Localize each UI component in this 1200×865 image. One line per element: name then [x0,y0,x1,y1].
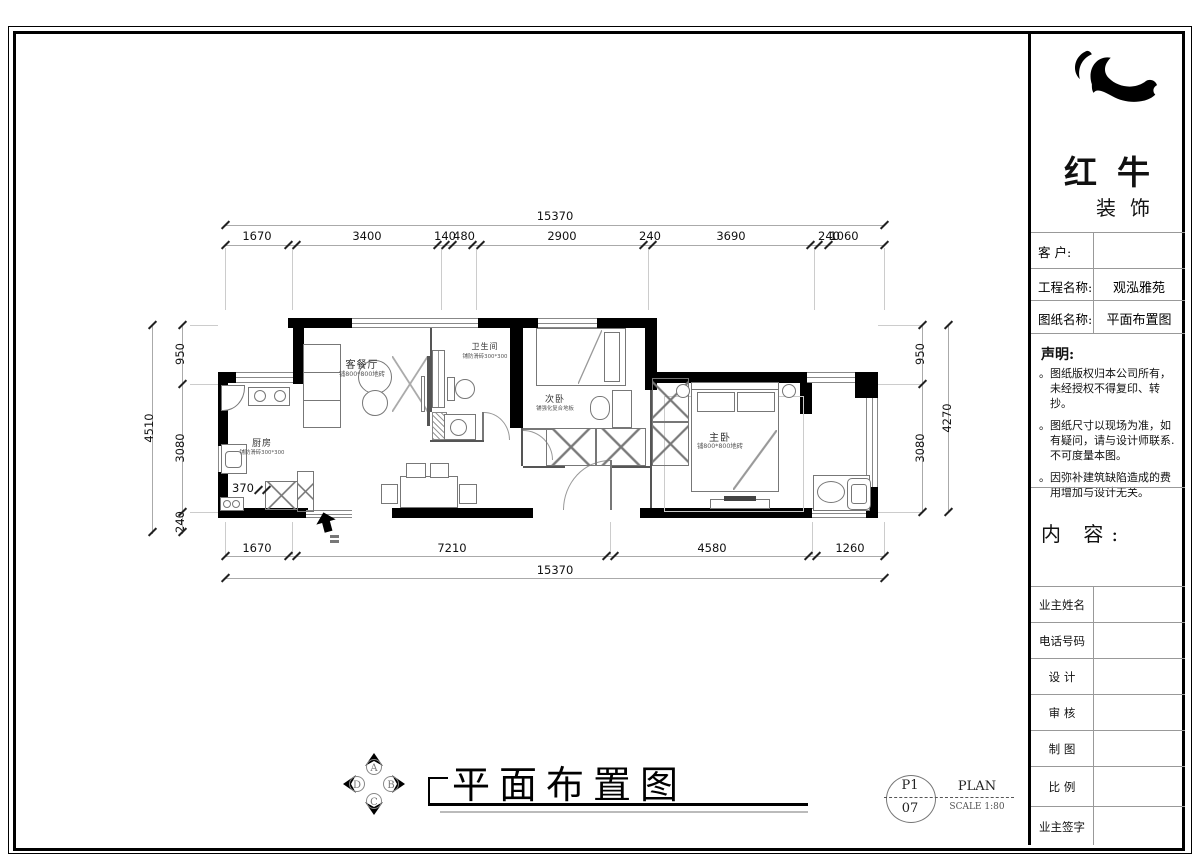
scale-label: SCALE 1:80 [938,802,1016,812]
window [538,318,597,328]
blanket-fold [578,330,602,384]
tb-divider [1031,658,1185,659]
row-label-signature: 业主签字 [1031,819,1093,835]
tb-divider [1031,487,1185,488]
laundry-basin [817,481,845,503]
field-label-project: 工程名称: [1038,277,1092,296]
window [807,372,855,383]
room-note-bath: 铺防滑砖300*300 [455,351,514,359]
exterior-wall [855,372,878,398]
compass-letter-b: B [387,780,394,791]
row-label-review: 审 核 [1031,705,1093,721]
row-label-draft: 制 图 [1031,741,1093,757]
dim-bottom-seg: 1670 [225,541,289,555]
dim-right-total: 4270 [940,395,954,441]
row-label-design: 设 计 [1031,669,1093,685]
company-name: 红牛 [1037,146,1177,194]
ceiling-light-icon [676,384,690,398]
extension-line [610,522,611,555]
extension-line [225,248,226,310]
window [352,318,478,328]
content-label: 内 容: [1041,518,1126,547]
dim-line-top-chain [225,245,885,246]
tv-master [724,496,756,501]
north-compass-icon: A B C D [342,752,406,816]
interior-thick-wall [510,318,523,428]
statement-item: 因弥补建筑缺陷造成的费用增加与设计无关。 [1039,470,1181,500]
desk [612,390,632,428]
wardrobe [546,428,596,466]
dim-right-seg: 950 [913,332,927,376]
sheet-number-top: P1 [886,778,934,793]
entry-arrow-icon [316,512,342,544]
partition-wall [430,440,484,442]
extension-line [878,325,922,326]
tb-divider [1031,268,1185,269]
field-label-drawing: 图纸名称: [1038,309,1092,328]
wardrobe [596,428,646,466]
extension-line [812,522,813,555]
extension-line [190,325,218,326]
tv-board [427,356,430,426]
title-bracket [428,777,430,805]
sheet-number-divider [884,797,1014,798]
tb-divider [1031,766,1185,767]
statement-title: 声明: [1041,344,1074,364]
desk-chair [590,396,610,420]
dim-top-seg: 3400 [296,229,438,243]
dim-bottom-seg: 1260 [816,541,884,555]
dim-top-seg: 2900 [480,229,644,243]
dim-left-total: 4510 [142,405,156,451]
extension-line [814,248,815,310]
extension-line [190,512,218,513]
door-leaf [610,460,612,510]
exterior-wall [478,318,538,328]
compass-letter-c: C [370,797,378,808]
pillow [737,392,775,412]
extension-line [190,384,218,385]
toilet-bowl [455,379,475,399]
extension-line [884,248,885,310]
dim-top-seg: 1670 [225,229,289,243]
plan-label: PLAN [940,779,1014,794]
title-underline-light [440,811,808,813]
compass-letter-a: A [369,763,378,774]
partition-wall [523,466,565,468]
room-note-bed2: 铺强化复合地板 [524,403,587,411]
extension-line [878,384,922,385]
extension-line [884,522,885,555]
tv-living [421,376,425,412]
dining-chair [459,484,477,504]
window [236,372,293,383]
extension-line [441,248,442,310]
dim-left-seg: 3080 [173,426,187,470]
partition-wall [612,466,650,468]
statement-list: 图纸版权归本公司所有，未经授权不得复印、转抄。 图纸尺寸以现场为准，如有疑问，请… [1039,366,1181,507]
drawing-sheet: 15370 1670 3400 140 480 2900 240 3690 24… [0,0,1200,865]
dining-chair [381,484,398,504]
tb-divider [1031,300,1185,301]
title-bracket [428,777,448,779]
room-label-bath: 卫生间 [460,341,510,352]
dim-bottom-seg: 4580 [614,541,810,555]
dim-line-bottom-total [225,578,885,579]
washing-machine-door [851,484,867,504]
room-note-master: 铺800*800地砖 [684,442,756,451]
headboard-line [691,389,779,390]
extension-line [476,248,477,310]
room-note-living: 铺800*800地砖 [322,370,401,379]
ceiling-light-icon [782,384,796,398]
tb-divider [1093,586,1094,845]
window [866,398,878,487]
toilet-tank [447,377,455,401]
company-name-sub: 装饰 [1065,192,1181,221]
field-value-project: 观泓雅苑 [1093,277,1185,296]
shower-column [432,350,445,408]
pillow [604,332,620,382]
extension-line [225,522,226,555]
row-label-phone: 电话号码 [1031,633,1093,649]
dim-bottom-total: 15370 [225,563,885,577]
dining-chair [406,463,426,478]
extension-line [878,512,922,513]
tb-divider [1031,622,1185,623]
dining-chair [430,463,449,478]
dim-line-bottom-chain [225,556,885,557]
bath-basin [450,419,467,436]
round-table-small [362,390,388,416]
tb-divider [1031,586,1185,587]
stove-burner [274,390,286,402]
tall-cabinet [297,471,314,512]
room-note-kitchen: 铺防滑砖300*300 [226,447,298,455]
extension-line [292,248,293,310]
company-logo-bull-icon [1049,42,1169,142]
sheet-number-bottom: 07 [886,801,934,816]
statement-item: 图纸尺寸以现场为准，如有疑问，请与设计师联系. 不可度量本图。 [1039,418,1181,463]
exterior-wall [392,508,533,518]
drawing-title: 平面布置图 [452,754,822,809]
row-label-scale: 比 例 [1031,779,1093,795]
field-label-customer: 客 户: [1038,242,1071,261]
dim-top-total: 15370 [225,209,885,223]
dining-table [400,476,458,508]
stove-burner [254,390,266,402]
tb-divider [1031,694,1185,695]
hob-circle [232,500,240,508]
extension-line [648,248,649,310]
tb-divider [1031,806,1185,807]
dim-left-seg: 950 [173,332,187,376]
pillow [697,392,735,412]
dim-top-seg: 3690 [652,229,810,243]
tb-divider [1031,333,1185,334]
extension-line [292,522,293,555]
dim-line-top-total [225,225,885,226]
hob-circle [223,500,231,508]
statement-item: 图纸版权归本公司所有，未经授权不得复印、转抄。 [1039,366,1181,411]
field-value-drawing: 平面布置图 [1093,309,1185,328]
tb-divider [1031,232,1185,233]
tb-divider [1031,730,1185,731]
title-block: 红牛 装饰 客 户: 工程名称: 观泓雅苑 图纸名称: 平面布置图 声明: 图纸… [1028,34,1185,845]
compass-letter-d: D [353,780,361,791]
dim-bottom-seg: 7210 [296,541,608,555]
dim-right-seg: 3080 [913,426,927,470]
sofa-cushion-line [303,400,341,401]
row-label-owner-name: 业主姓名 [1031,597,1093,613]
